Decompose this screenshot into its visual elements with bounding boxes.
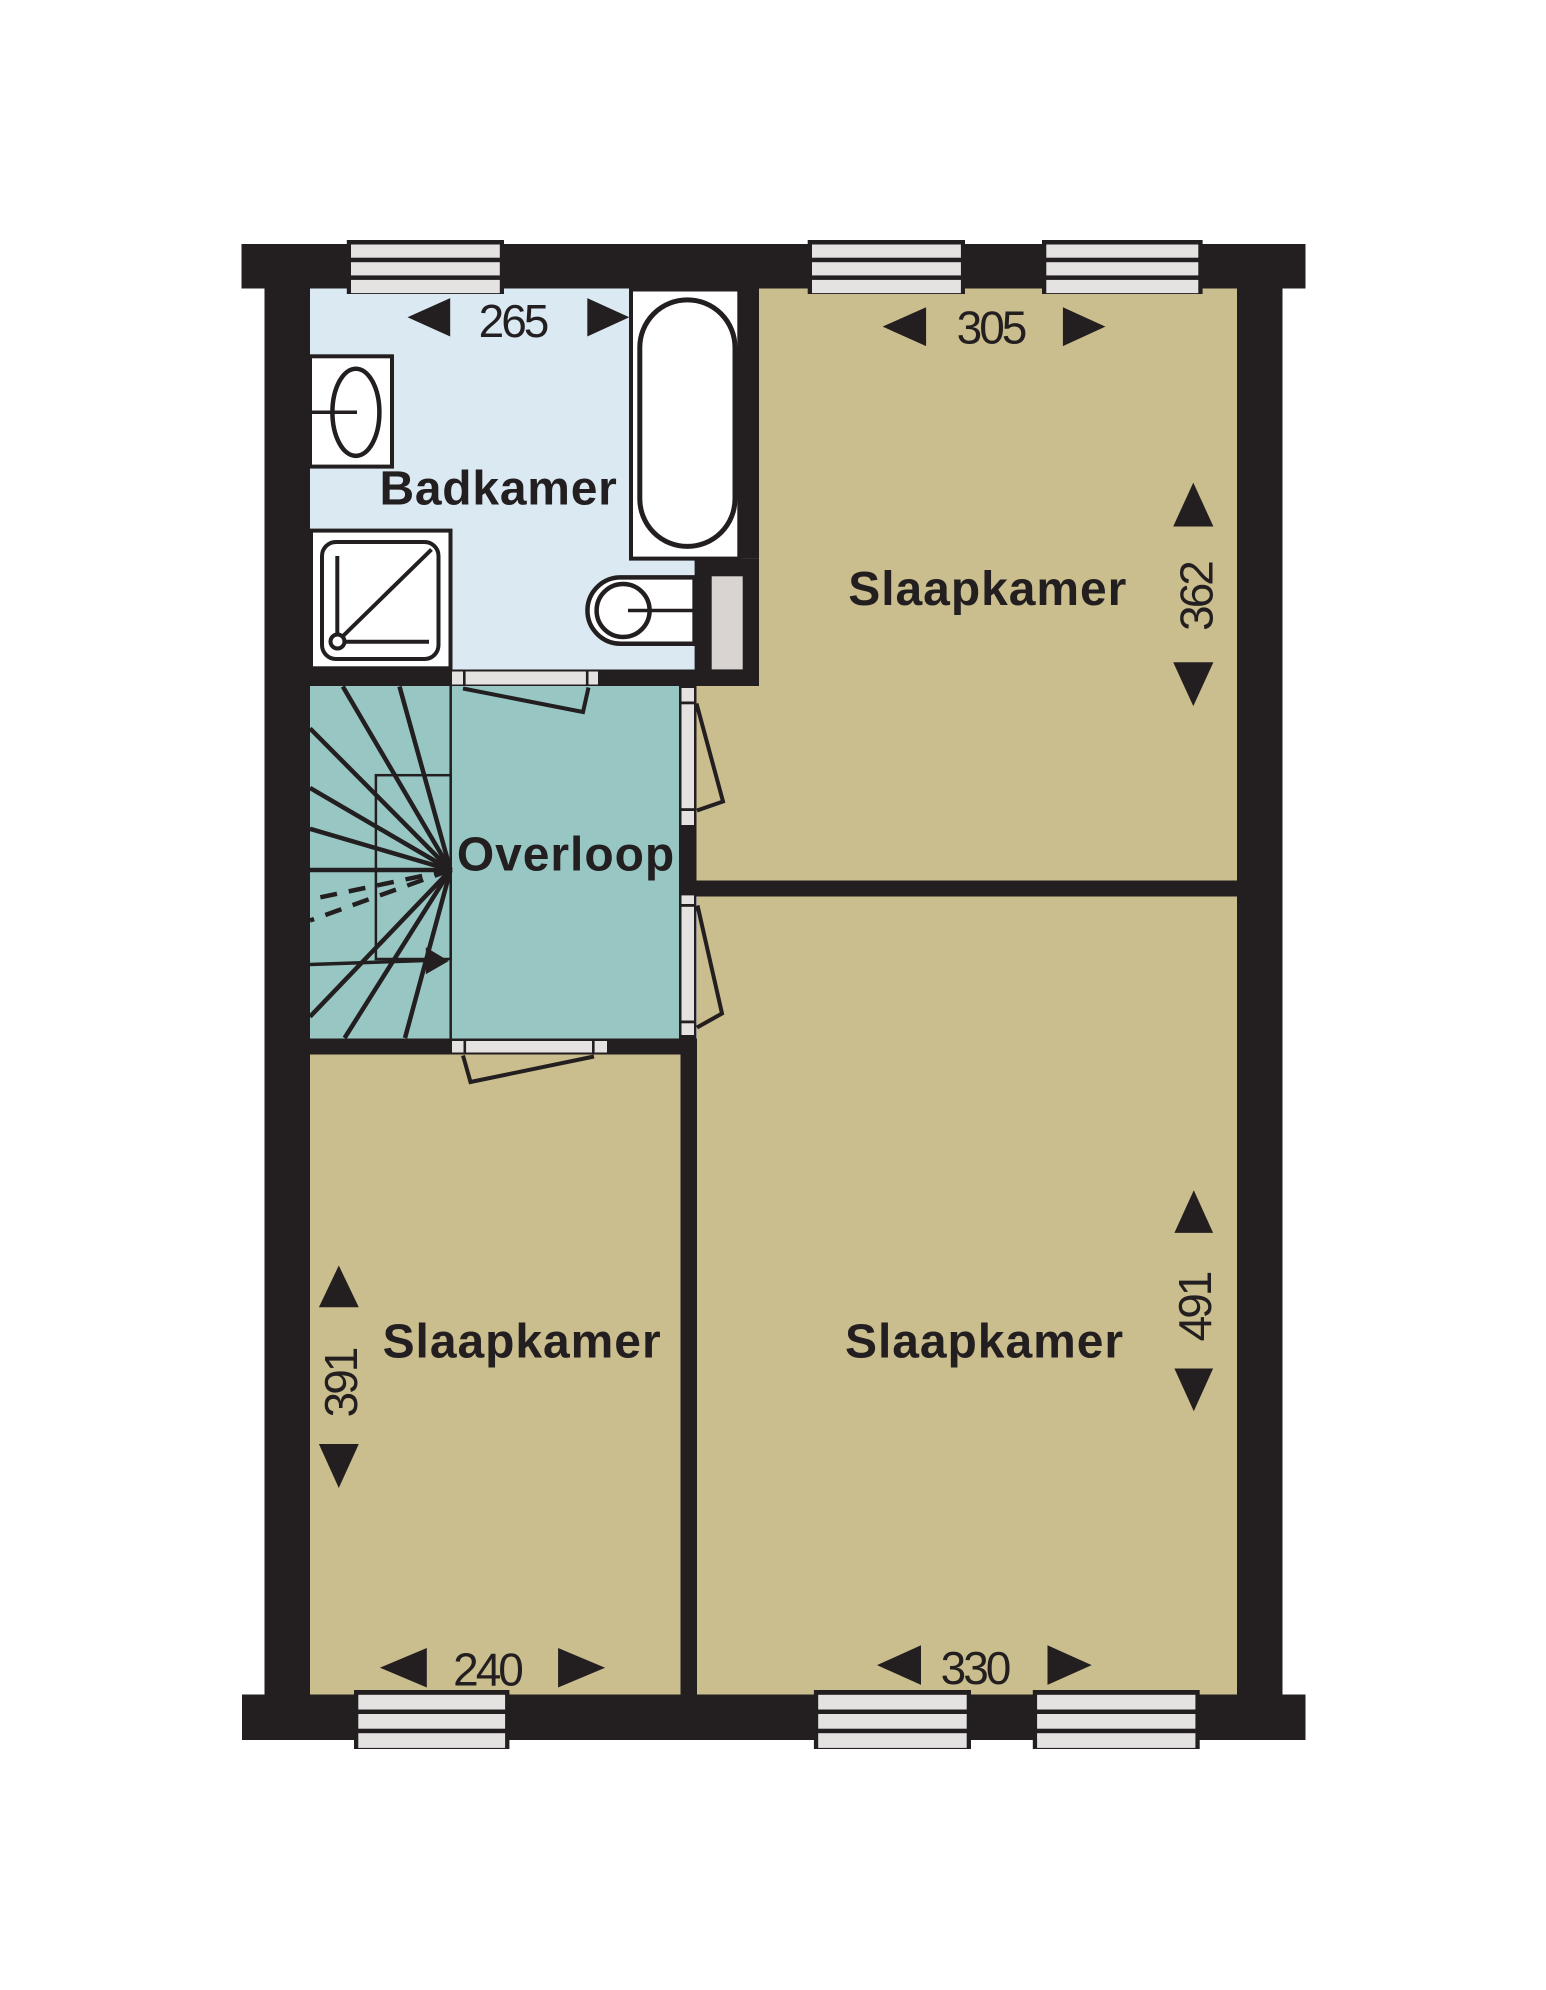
svg-text:265: 265	[479, 295, 548, 347]
svg-text:362: 362	[1171, 562, 1223, 631]
svg-text:Slaapkamer: Slaapkamer	[383, 1316, 662, 1369]
svg-text:Overloop: Overloop	[457, 829, 675, 882]
svg-text:391: 391	[315, 1348, 367, 1417]
svg-text:240: 240	[453, 1644, 522, 1696]
svg-text:Slaapkamer: Slaapkamer	[848, 563, 1127, 616]
svg-text:491: 491	[1169, 1272, 1221, 1341]
svg-text:Slaapkamer: Slaapkamer	[845, 1316, 1124, 1369]
svg-text:305: 305	[957, 301, 1026, 353]
svg-text:330: 330	[941, 1642, 1010, 1694]
svg-text:Badkamer: Badkamer	[379, 463, 617, 516]
